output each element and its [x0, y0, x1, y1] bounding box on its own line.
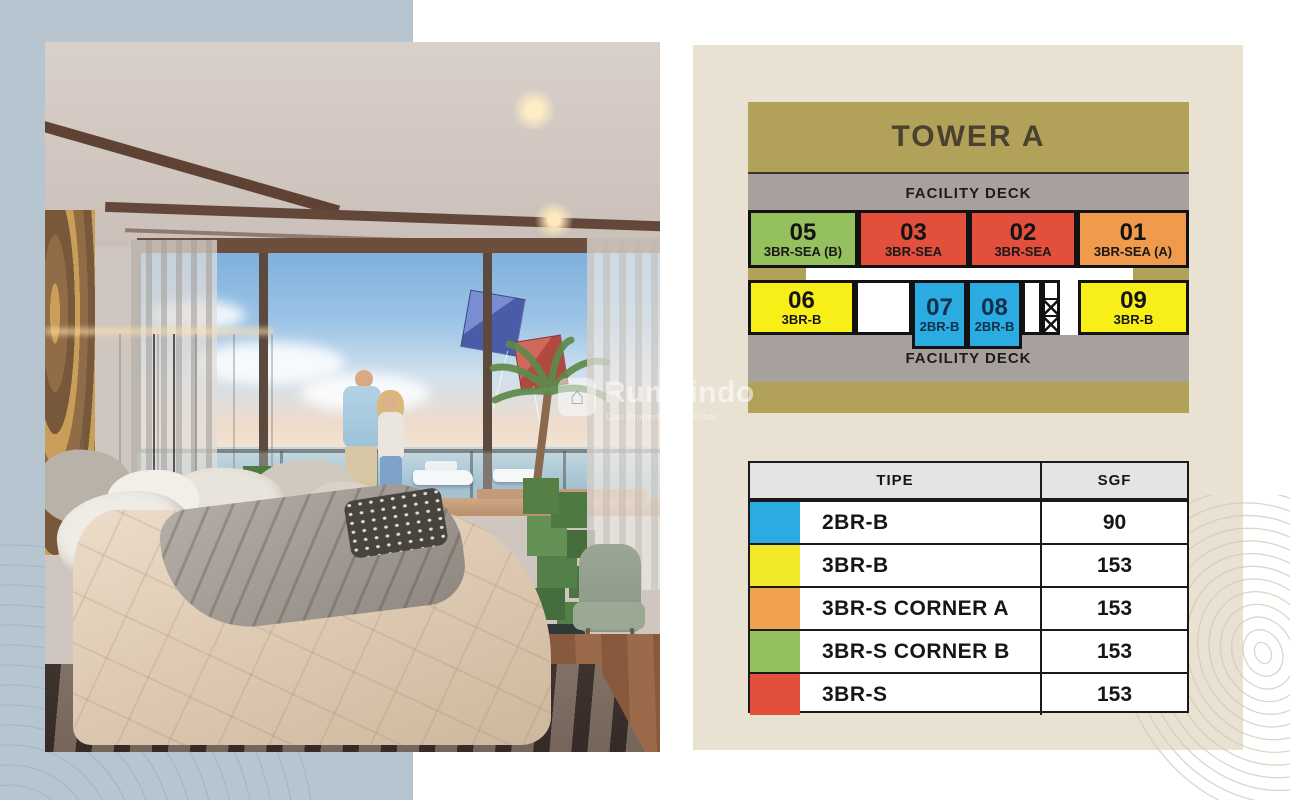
unit-type: 2BR-B: [975, 320, 1015, 334]
elevator-x-cell: [1045, 315, 1057, 332]
unit-number: 01: [1120, 220, 1147, 245]
sgf-cell: 153: [1040, 545, 1187, 586]
unit-08: 08 2BR-B: [967, 280, 1022, 349]
tipe-cell: 3BR-S: [800, 674, 1040, 715]
sgf-cell: 153: [1040, 674, 1187, 715]
unit-02: 02 3BR-SEA: [969, 210, 1077, 268]
unit-number: 03: [900, 220, 927, 245]
unit-07: 07 2BR-B: [912, 280, 967, 349]
column-header-sgf: SGF: [1040, 463, 1187, 498]
unit-type-table: TIPE SGF 2BR-B 90 3BR-B 153 3BR-S CORNER…: [748, 461, 1189, 713]
pendant-cord: [153, 334, 155, 492]
unit-number: 06: [788, 288, 815, 313]
unit-09: 09 3BR-B: [1078, 280, 1189, 335]
yacht: [413, 470, 473, 485]
unit-number: 09: [1120, 288, 1147, 313]
unit-type: 3BR-B: [782, 313, 822, 327]
void-block-narrow: [1022, 280, 1042, 335]
diagram-base-band: [748, 382, 1189, 413]
watermark-brand: Rumaindo: [604, 376, 755, 410]
column-header-tipe: TIPE: [750, 463, 1040, 498]
watermark-tagline: Cari Properti Tanpa Ribet: [606, 412, 717, 422]
tipe-cell: 3BR-B: [800, 545, 1040, 586]
tipe-cell: 3BR-S CORNER A: [800, 588, 1040, 629]
unit-type: 3BR-SEA (B): [764, 245, 842, 259]
facility-deck-top-label: FACILITY DECK: [748, 174, 1189, 212]
table-row: 3BR-S CORNER A 153: [750, 586, 1187, 629]
brochure-page: TOWER A FACILITY DECK 05 3BR-SEA (B) 03 …: [0, 0, 1290, 800]
unit-06: 06 3BR-B: [748, 280, 855, 335]
sgf-cell: 153: [1040, 631, 1187, 672]
unit-05: 05 3BR-SEA (B): [748, 210, 858, 268]
facility-deck-top-band: FACILITY DECK: [748, 172, 1189, 212]
elevator-shaft-icon: [1042, 280, 1060, 335]
table-row: 3BR-S CORNER B 153: [750, 629, 1187, 672]
unit-type: 2BR-B: [920, 320, 960, 334]
woman-top: [378, 412, 404, 460]
accent-chair-seat: [573, 602, 645, 630]
unit-type: 3BR-B: [1114, 313, 1154, 327]
unit-type: 3BR-SEA (A): [1094, 245, 1172, 259]
unit-type: 3BR-SEA: [885, 245, 942, 259]
unit-01: 01 3BR-SEA (A): [1077, 210, 1189, 268]
unit-number: 05: [790, 220, 817, 245]
elevator-cell: [1045, 283, 1057, 298]
color-swatch: [750, 674, 800, 715]
color-swatch: [750, 631, 800, 672]
unit-type: 3BR-SEA: [994, 245, 1051, 259]
corridor-olive-right: [1133, 268, 1189, 280]
table-row: 3BR-S 153: [750, 672, 1187, 715]
potted-plant: [523, 478, 559, 514]
color-swatch: [750, 545, 800, 586]
unit-03: 03 3BR-SEA: [858, 210, 969, 268]
tower-a-diagram: TOWER A FACILITY DECK 05 3BR-SEA (B) 03 …: [748, 102, 1189, 413]
house-logo-icon: ⌂: [558, 378, 596, 416]
color-swatch: [750, 588, 800, 629]
table-row: 3BR-B 153: [750, 543, 1187, 586]
man-shirt: [343, 386, 381, 448]
table-header-row: TIPE SGF: [750, 463, 1187, 500]
unit-number: 07: [926, 295, 953, 320]
tipe-cell: 2BR-B: [800, 502, 1040, 543]
unit-number: 02: [1010, 220, 1037, 245]
color-swatch: [750, 502, 800, 543]
recessed-light: [510, 90, 558, 130]
sgf-cell: 153: [1040, 588, 1187, 629]
sgf-cell: 90: [1040, 502, 1187, 543]
recessed-light: [533, 202, 575, 238]
corridor-olive-left: [748, 268, 806, 280]
watermark: ⌂ Rumaindo Cari Properti Tanpa Ribet: [558, 376, 778, 426]
void-block: [855, 280, 912, 335]
tipe-cell: 3BR-S CORNER B: [800, 631, 1040, 672]
elevator-x-cell: [1045, 298, 1057, 315]
woman: [384, 396, 398, 410]
diagram-title-band: TOWER A: [748, 102, 1189, 172]
unit-number: 08: [981, 295, 1008, 320]
table-row: 2BR-B 90: [750, 500, 1187, 543]
